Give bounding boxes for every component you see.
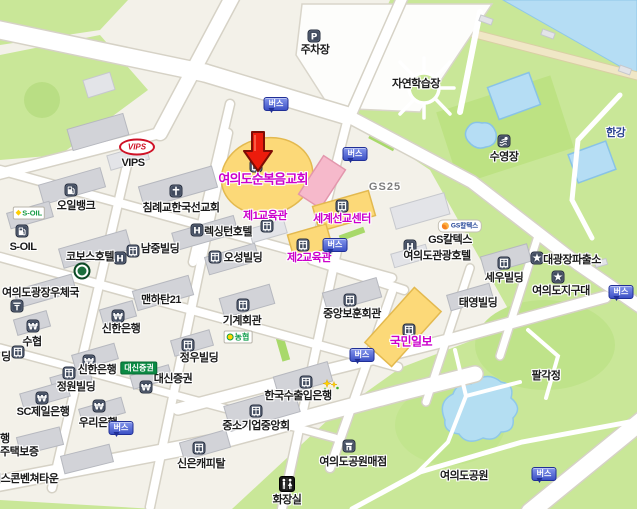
poi-label-vips-label[interactable]: VIPS <box>121 157 144 169</box>
post-icon[interactable] <box>11 300 24 313</box>
poi-label-nature-learning-center: 자연학습장 <box>392 75 440 91</box>
poi-label-suhyup[interactable]: 수협 <box>22 333 41 349</box>
nh-logo[interactable]: 농협 <box>224 331 253 344</box>
bank-icon[interactable]: ₩ <box>27 320 40 333</box>
gsc-logo[interactable]: GS칼텍스 <box>438 220 482 233</box>
bus-stop-marker-5[interactable]: 버스 <box>109 421 134 435</box>
poi-label-manhattan21[interactable]: 맨하탄21 <box>141 291 181 307</box>
building-icon[interactable] <box>209 251 222 264</box>
poi-label-daegwangjang-police-box[interactable]: 대광장파출소 <box>543 251 601 267</box>
poi-label-yeouido-park: 여의도공원 <box>440 467 488 483</box>
poi-label-sewoo-bldg[interactable]: 세우빌딩 <box>485 269 523 285</box>
bus-stop-marker-2[interactable]: 버스 <box>343 147 368 161</box>
svg-text:H: H <box>116 254 124 264</box>
poi-label-korea-exim-bank[interactable]: 한국수출입은행 <box>264 387 331 403</box>
bus-stop-marker-7[interactable]: 버스 <box>532 467 557 481</box>
poi-label-central-veterans-hall[interactable]: 중앙보훈회관 <box>323 305 381 321</box>
poi-label-excon-venture-town[interactable]: 엑스콘벤쳐타운 <box>0 470 58 486</box>
poi-label-han-river: 한강 <box>606 124 625 140</box>
hotel-icon[interactable]: H <box>114 252 127 265</box>
police-icon[interactable] <box>531 252 544 265</box>
poi-label-yeouido-patrol-unit[interactable]: 여의도지구대 <box>532 282 590 298</box>
bank-icon[interactable]: ₩ <box>140 381 153 394</box>
poi-label-parking-lot[interactable]: 주차장 <box>301 41 330 57</box>
poi-label-palgakjeong: 팔각정 <box>532 367 561 383</box>
map-canvas[interactable]: P주차장자연학습장수영장한강VIPS오일뱅크S-OIL침례교한국선교회H렉싱턴호… <box>0 0 637 509</box>
svg-text:H: H <box>193 226 201 236</box>
poi-label-yeouido-tourist-hotel[interactable]: 여의도관광호텔 <box>403 247 470 263</box>
poi-label-shinhan-bank-2[interactable]: 신한은행 <box>78 361 116 377</box>
poi-label-world-mission-center[interactable]: 세계선교센터 <box>313 210 371 226</box>
shop-icon[interactable] <box>343 440 356 453</box>
poi-label-gs-caltex-label[interactable]: GS칼텍스 <box>428 231 472 247</box>
poi-label-shinn-capital[interactable]: 신은캐피탈 <box>177 455 225 471</box>
svg-text:₩: ₩ <box>94 402 104 412</box>
poi-label-partial-bldg[interactable]: 딩 <box>1 348 11 364</box>
poi-label-kukmin-ilbo[interactable]: 국민일보 <box>390 333 432 350</box>
building-icon[interactable] <box>250 405 263 418</box>
toilet-icon[interactable] <box>279 476 295 492</box>
gas-icon[interactable] <box>16 225 29 238</box>
poi-label-s-oil-label[interactable]: S-OIL <box>10 241 37 253</box>
poi-label-gs25[interactable]: GS25 <box>369 181 401 193</box>
soil-logo[interactable]: ◆S-OIL <box>13 207 45 220</box>
building-icon[interactable] <box>237 299 250 312</box>
poi-label-daishin-securities-label[interactable]: 대신증권 <box>154 370 192 386</box>
poi-label-yeouido-post-office[interactable]: 여의도광장우체국 <box>2 284 79 300</box>
bus-stop-marker-4[interactable]: 버스 <box>350 348 375 362</box>
svg-text:₩: ₩ <box>141 383 151 393</box>
bus-stop-marker-3[interactable]: 버스 <box>323 238 348 252</box>
selected-location-marker[interactable] <box>241 129 275 173</box>
poi-label-sc-first-bank[interactable]: SC제일은행 <box>17 403 70 419</box>
bank-icon[interactable]: ₩ <box>93 400 106 413</box>
poi-label-baptist-korea-mission[interactable]: 침례교한국선교회 <box>143 199 220 215</box>
poi-label-partial-housing-guarantee[interactable]: 주택보증 <box>0 443 38 459</box>
building-icon[interactable] <box>127 245 140 258</box>
gas-icon[interactable] <box>65 184 78 197</box>
poi-label-jungwon-bldg[interactable]: 정원빌딩 <box>57 378 95 394</box>
bus-stop-marker-6[interactable]: 버스 <box>609 285 634 299</box>
poi-label-swimming-pool[interactable]: 수영장 <box>490 148 519 164</box>
svg-text:₩: ₩ <box>28 322 38 332</box>
poi-label-edu-hall-1[interactable]: 제1교육관 <box>243 207 287 223</box>
church-icon[interactable] <box>170 185 183 198</box>
poi-label-osung-bldg[interactable]: 오성빌딩 <box>224 249 262 265</box>
poi-label-machinery-hall[interactable]: 기계회관 <box>223 312 261 328</box>
poi-label-jungwoo-bldg[interactable]: 정우빌딩 <box>180 349 218 365</box>
poi-label-oilbank[interactable]: 오일뱅크 <box>57 197 95 213</box>
building-icon[interactable] <box>193 442 206 455</box>
poi-label-lexington-hotel[interactable]: 렉싱턴호텔 <box>204 223 252 239</box>
daishin-logo[interactable]: 대신증권 <box>120 362 157 375</box>
poi-label-taeyoung-bldg[interactable]: 태영빌딩 <box>459 294 497 310</box>
poi-label-restroom[interactable]: 화장실 <box>273 491 302 507</box>
bus-stop-marker-1[interactable]: 버스 <box>264 97 289 111</box>
poi-label-yeouido-park-store[interactable]: 여의도공원매점 <box>319 453 386 469</box>
vips-logo[interactable]: VIPS <box>119 139 155 156</box>
swim-icon[interactable] <box>498 135 511 148</box>
poi-label-shinhan-bank-1[interactable]: 신한은행 <box>102 320 140 336</box>
hotel-icon[interactable]: H <box>191 224 204 237</box>
poi-label-sme-central-assoc[interactable]: 중소기업중앙회 <box>222 417 289 433</box>
poi-label-namjung-bldg[interactable]: 남중빌딩 <box>141 240 179 256</box>
building-icon[interactable] <box>498 257 511 270</box>
kobos-logo[interactable] <box>74 263 91 280</box>
